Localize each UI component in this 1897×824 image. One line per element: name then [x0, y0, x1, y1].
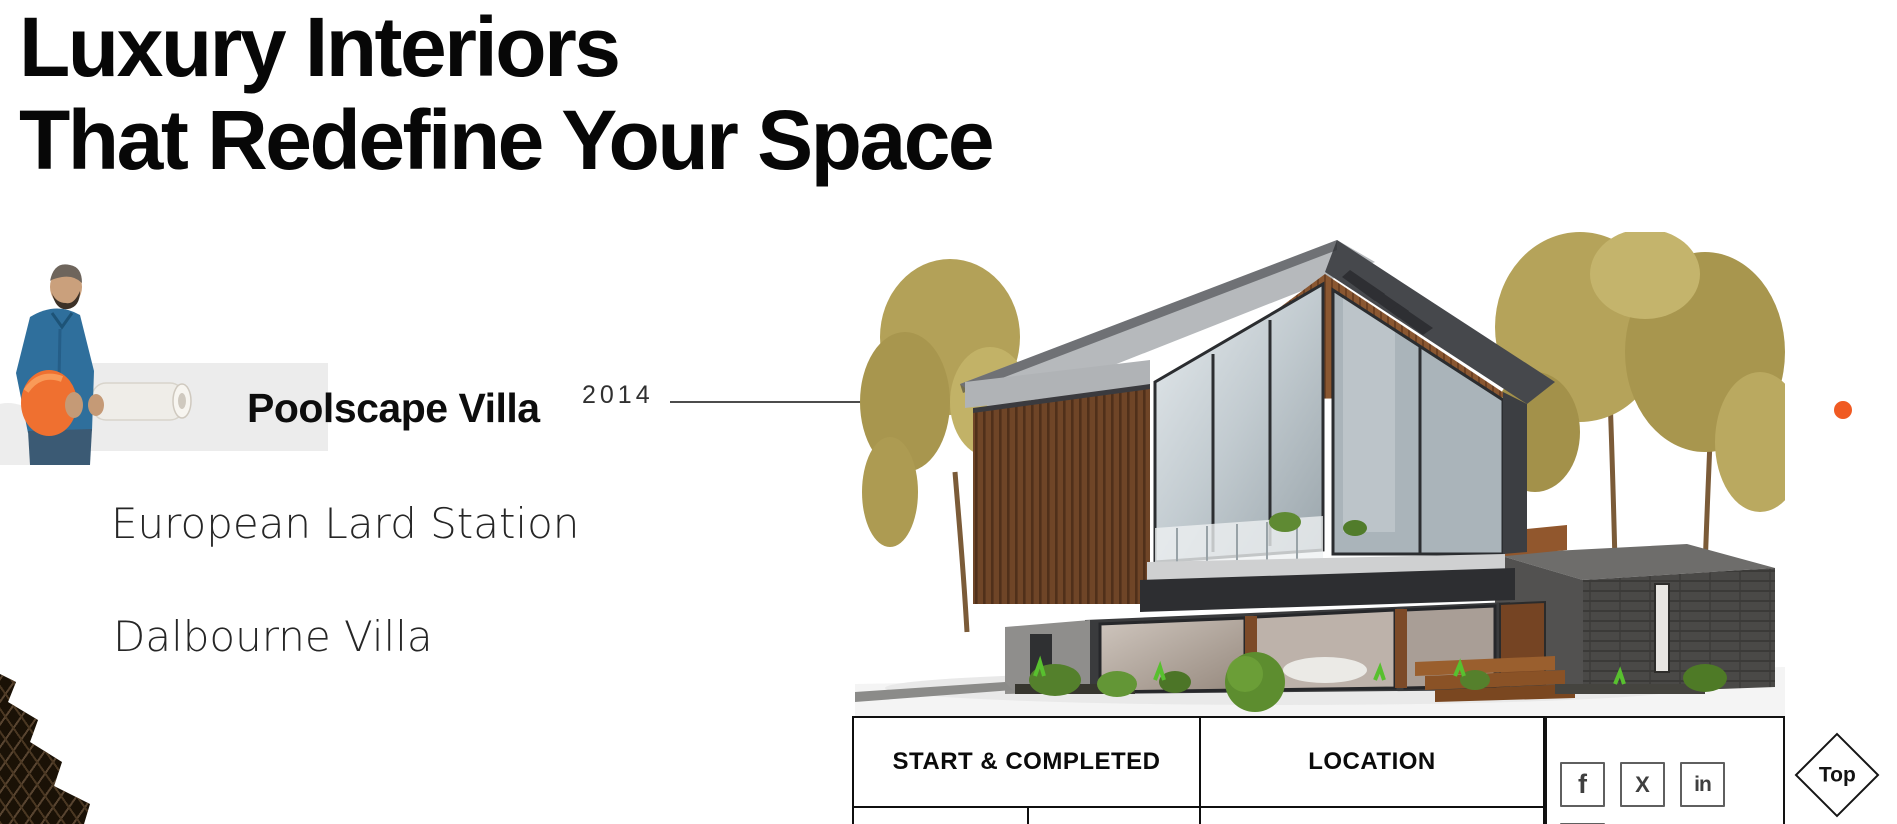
page-title-line1: Luxury Interiors — [19, 1, 992, 94]
corner-texture-image — [0, 668, 122, 824]
project-details-table: START & COMPLETED LOCATION — [852, 716, 1545, 824]
page-title-line2: That Redefine Your Space — [19, 94, 992, 187]
facebook-icon[interactable]: f — [1560, 762, 1605, 807]
page-title: Luxury Interiors That Redefine Your Spac… — [19, 1, 992, 187]
back-to-top-label: Top — [1819, 763, 1856, 787]
table-header-start-completed: START & COMPLETED — [854, 718, 1201, 806]
table-data-row — [854, 808, 1543, 824]
table-cell-start — [854, 808, 1029, 824]
table-header-row: START & COMPLETED LOCATION — [854, 718, 1543, 808]
nav-project-dalbourne-villa[interactable]: Dalbourne Villa — [113, 612, 433, 661]
tree-right — [1490, 232, 1785, 572]
back-to-top-button[interactable]: Top — [1795, 733, 1880, 818]
table-cell-completed — [1029, 808, 1201, 824]
page: Luxury Interiors That Redefine Your Spac… — [0, 0, 1897, 824]
nav-project-european-lard-station[interactable]: European Lard Station — [111, 499, 579, 548]
table-header-location: LOCATION — [1201, 718, 1543, 806]
social-share-box: f X in — [1545, 716, 1785, 824]
x-twitter-icon[interactable]: X — [1620, 762, 1665, 807]
nav-project-poolscape-villa[interactable]: Poolscape Villa — [247, 385, 540, 432]
carousel-indicator-dot — [1834, 401, 1852, 419]
worker-photo — [0, 253, 200, 465]
house-image — [855, 232, 1785, 717]
linkedin-icon[interactable]: in — [1680, 762, 1725, 807]
project-year: 2014 — [582, 381, 654, 410]
table-cell-location — [1201, 808, 1543, 824]
